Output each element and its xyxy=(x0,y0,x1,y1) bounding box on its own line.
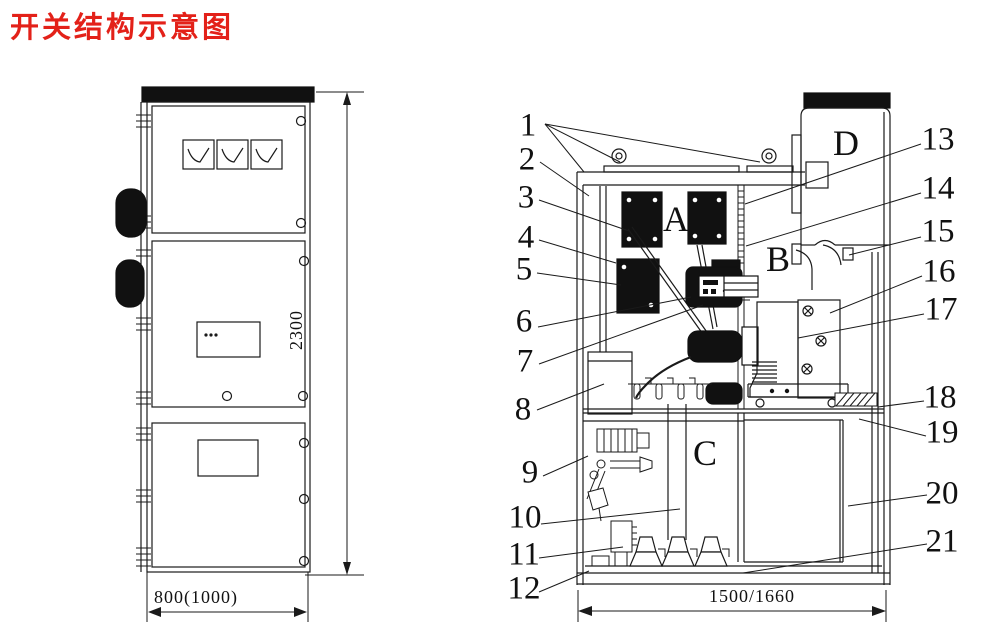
meter-gauges xyxy=(183,140,282,169)
callout-16: 16 xyxy=(923,256,956,289)
callout-2: 2 xyxy=(519,144,536,177)
callout-20: 20 xyxy=(926,478,959,511)
callout-9: 9 xyxy=(522,457,539,490)
callout-15: 15 xyxy=(922,216,955,249)
callout-19: 19 xyxy=(926,417,959,450)
front-panel-bottom xyxy=(152,423,305,567)
callout-5: 5 xyxy=(516,254,533,287)
callout-13: 13 xyxy=(922,124,955,157)
cabinet-top-cap xyxy=(142,87,314,102)
callout-14: 14 xyxy=(922,173,955,206)
low-voltage-box xyxy=(792,93,890,265)
callout-6: 6 xyxy=(516,306,533,339)
callout-10: 10 xyxy=(509,502,542,535)
schematic-drawing xyxy=(0,0,983,640)
callout-4: 4 xyxy=(518,222,535,255)
callout-11: 11 xyxy=(508,539,540,572)
door-hinges xyxy=(136,115,151,566)
callout-7: 7 xyxy=(517,346,534,379)
cable-compartment xyxy=(630,404,843,566)
operating-mechanism xyxy=(748,250,848,407)
nameplate-window-middle xyxy=(197,322,260,357)
comb-partition xyxy=(628,378,712,399)
callout-8: 8 xyxy=(515,394,532,427)
front-height-dimension: 2300 xyxy=(287,310,305,350)
door-handle-upper xyxy=(116,189,146,237)
callout-12: 12 xyxy=(508,573,541,606)
callout-18: 18 xyxy=(924,382,957,415)
compartment-label-d: D xyxy=(833,125,859,161)
front-view-drawing xyxy=(116,87,314,572)
insulator-middle xyxy=(688,331,742,362)
side-view-drawing xyxy=(577,93,890,585)
callout-17: 17 xyxy=(925,294,958,327)
cable-loop xyxy=(636,357,691,398)
front-panel-middle xyxy=(152,241,305,407)
hatched-support xyxy=(835,393,877,406)
front-width-dimension: 800(1000) xyxy=(154,588,238,606)
callout-3: 3 xyxy=(518,182,535,215)
door-handle-lower xyxy=(116,260,144,307)
compartment-label-c: C xyxy=(693,435,717,471)
callout-1: 1 xyxy=(520,110,537,143)
callout-21: 21 xyxy=(926,526,959,559)
side-width-dimension: 1500/1660 xyxy=(709,587,795,605)
nameplate-window-bottom xyxy=(198,440,258,476)
schematic-page: 开关结构示意图 xyxy=(0,0,983,640)
compartment-label-b: B xyxy=(766,241,790,277)
compartment-label-a: A xyxy=(663,201,689,237)
insulator-lower xyxy=(706,383,742,404)
